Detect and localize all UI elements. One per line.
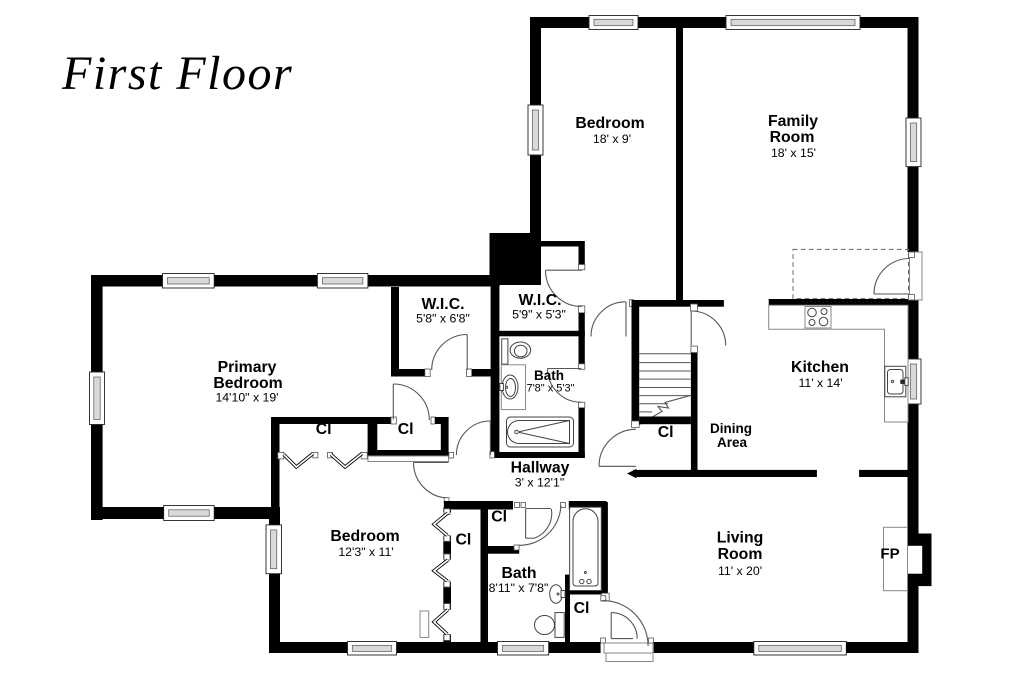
svg-text:Kitchen: Kitchen <box>791 359 849 376</box>
svg-text:First Floor: First Floor <box>61 47 293 100</box>
svg-text:Hallway: Hallway <box>511 460 570 477</box>
svg-text:11' x 14': 11' x 14' <box>798 376 842 390</box>
svg-text:8'11" x 7'8": 8'11" x 7'8" <box>489 581 549 595</box>
svg-text:Bath: Bath <box>501 565 536 582</box>
svg-text:Cl: Cl <box>574 600 590 617</box>
svg-text:5'9" x 5'3": 5'9" x 5'3" <box>512 308 566 322</box>
svg-text:Living: Living <box>717 530 764 547</box>
svg-text:W.I.C.: W.I.C. <box>421 296 464 313</box>
svg-text:Room: Room <box>770 129 815 146</box>
svg-text:7'8" x 5'3": 7'8" x 5'3" <box>526 383 574 395</box>
svg-text:FP: FP <box>880 546 899 563</box>
svg-text:Bath: Bath <box>534 368 564 383</box>
svg-text:12'3" x 11': 12'3" x 11' <box>338 545 393 559</box>
svg-text:5'8" x 6'8": 5'8" x 6'8" <box>416 312 470 326</box>
svg-text:Bedroom: Bedroom <box>330 528 399 545</box>
svg-text:Cl: Cl <box>455 532 471 549</box>
svg-text:3' x 12'1": 3' x 12'1" <box>515 476 564 490</box>
svg-text:Bedroom: Bedroom <box>213 375 282 392</box>
svg-text:Cl: Cl <box>398 421 414 438</box>
svg-text:Bedroom: Bedroom <box>575 115 644 132</box>
svg-text:18' x 9': 18' x 9' <box>593 132 631 146</box>
svg-text:W.I.C.: W.I.C. <box>518 292 561 309</box>
svg-text:14'10" x 19': 14'10" x 19' <box>215 391 278 405</box>
svg-text:Primary: Primary <box>218 359 277 376</box>
svg-text:Room: Room <box>718 546 763 563</box>
svg-text:Dining: Dining <box>710 421 752 436</box>
svg-text:Cl: Cl <box>491 509 507 526</box>
svg-text:Family: Family <box>768 113 818 130</box>
svg-text:18' x 15': 18' x 15' <box>771 146 816 160</box>
svg-text:Area: Area <box>717 435 748 450</box>
svg-text:11' x 20': 11' x 20' <box>718 564 762 578</box>
svg-text:Cl: Cl <box>316 421 332 438</box>
svg-text:Cl: Cl <box>658 424 674 441</box>
